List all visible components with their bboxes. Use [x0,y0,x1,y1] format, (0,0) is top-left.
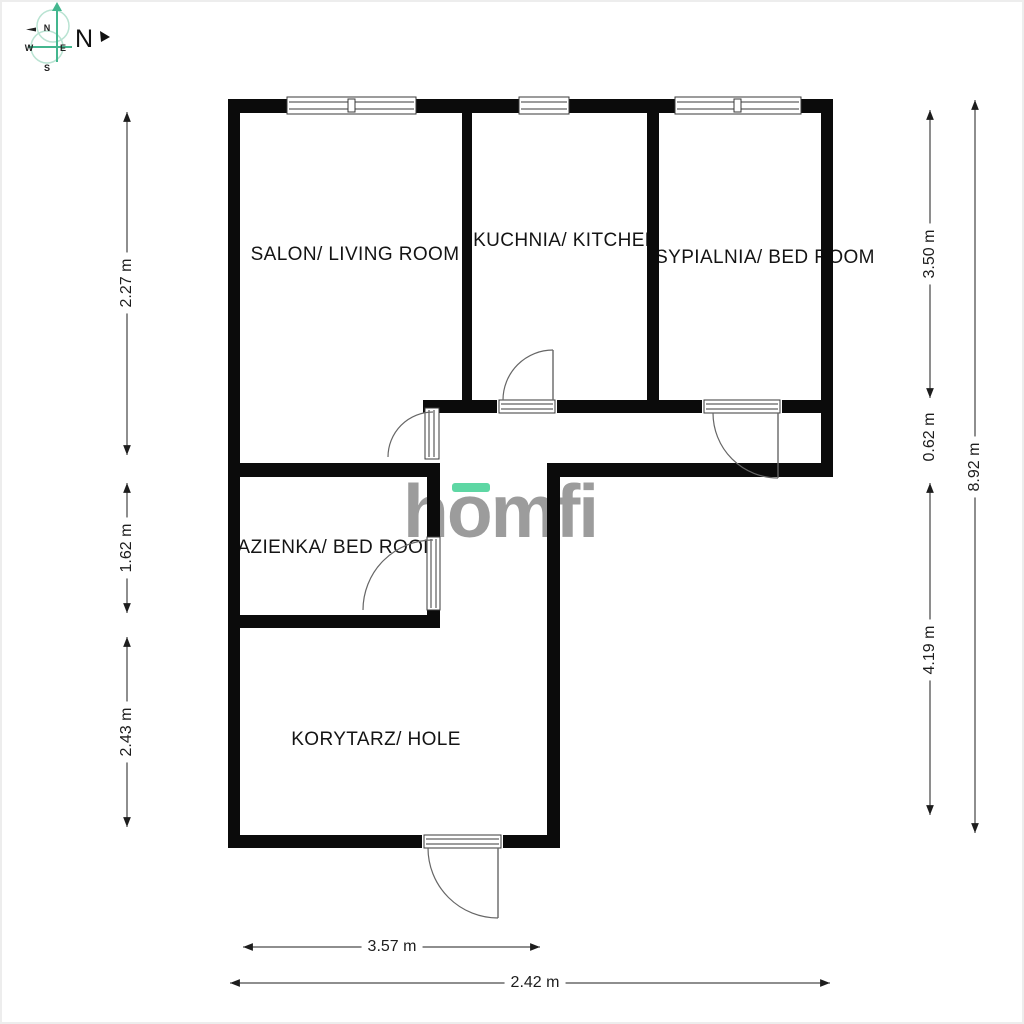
dim-label-bottom-1: 3.57 m [362,937,423,957]
compass-label-e: E [60,43,66,53]
compass-west-arrowhead [26,28,36,32]
compass-big-north-label: N [75,25,93,53]
dim-label-left-2: 1.62 m [117,518,137,579]
compass-pointer-icon [100,31,110,42]
compass-label-w: W [25,43,34,53]
compass-rose: N W E S N [8,0,138,90]
dim-label-left-1: 2.27 m [117,253,137,314]
dim-label-right-4: 8.92 m [965,437,985,498]
floorplan-page: homfi SALON/ LIVING ROOM KUCHNIA/ KITCHE… [0,0,1024,1024]
compass-north-arrowhead [52,2,62,11]
dim-label-bottom-2: 2.42 m [505,973,566,993]
dim-label-right-1: 3.50 m [920,224,940,285]
dim-label-left-3: 2.43 m [117,702,137,763]
dim-label-right-3: 4.19 m [920,620,940,681]
compass-circle-top [37,10,69,42]
dim-label-right-2: 0.62 m [920,407,940,468]
compass-label-s: S [44,63,50,73]
dimension-lines [0,0,1024,1024]
compass-label-n: N [44,23,51,33]
